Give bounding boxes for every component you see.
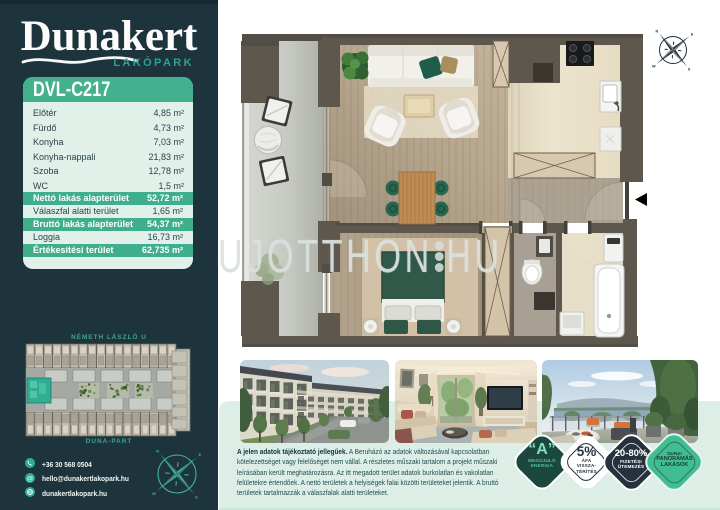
svg-text:W: W [152,491,156,496]
svg-text:E: E [199,452,202,457]
svg-text:@: @ [27,475,34,482]
svg-text:E: E [691,32,694,36]
svg-text:N: N [656,29,659,33]
svg-text:N: N [156,449,159,454]
svg-text:S: S [195,495,198,500]
svg-text:W: W [652,65,656,69]
svg-text:S: S [688,68,691,72]
